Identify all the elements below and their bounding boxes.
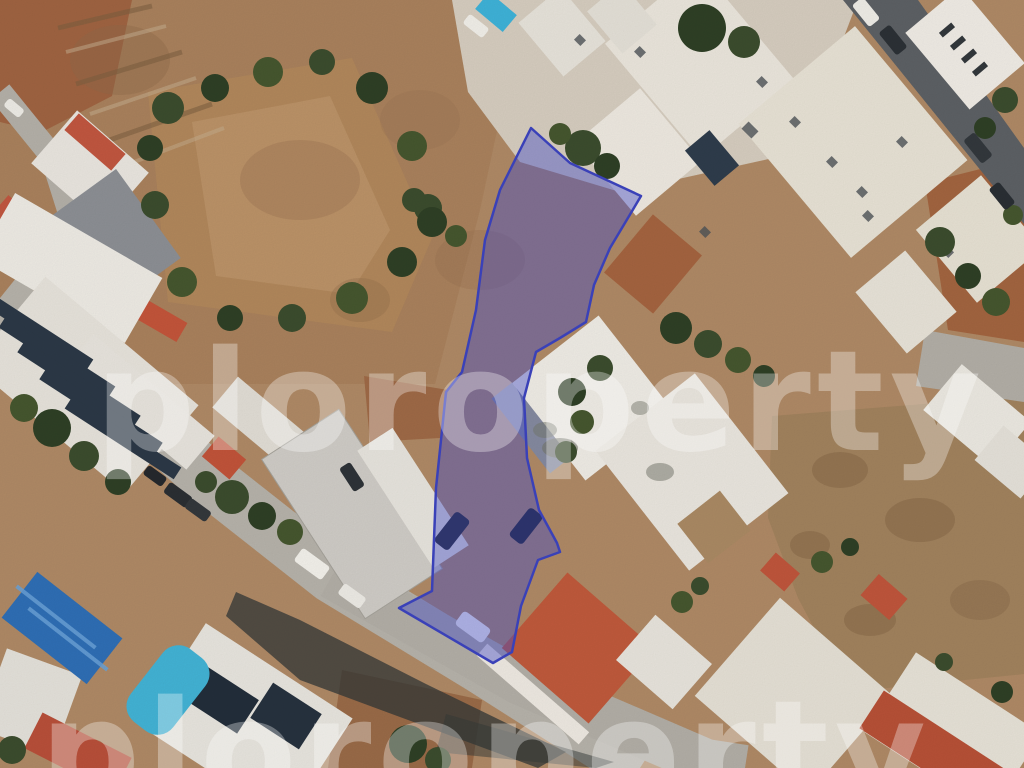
watermark-text-clipped: ploroperty bbox=[40, 671, 932, 768]
watermark-text: ploroperty bbox=[95, 321, 987, 484]
aerial-photo: ploroperty ploroperty bbox=[0, 0, 1024, 768]
aerial-scene: ploroperty ploroperty bbox=[0, 0, 1024, 768]
